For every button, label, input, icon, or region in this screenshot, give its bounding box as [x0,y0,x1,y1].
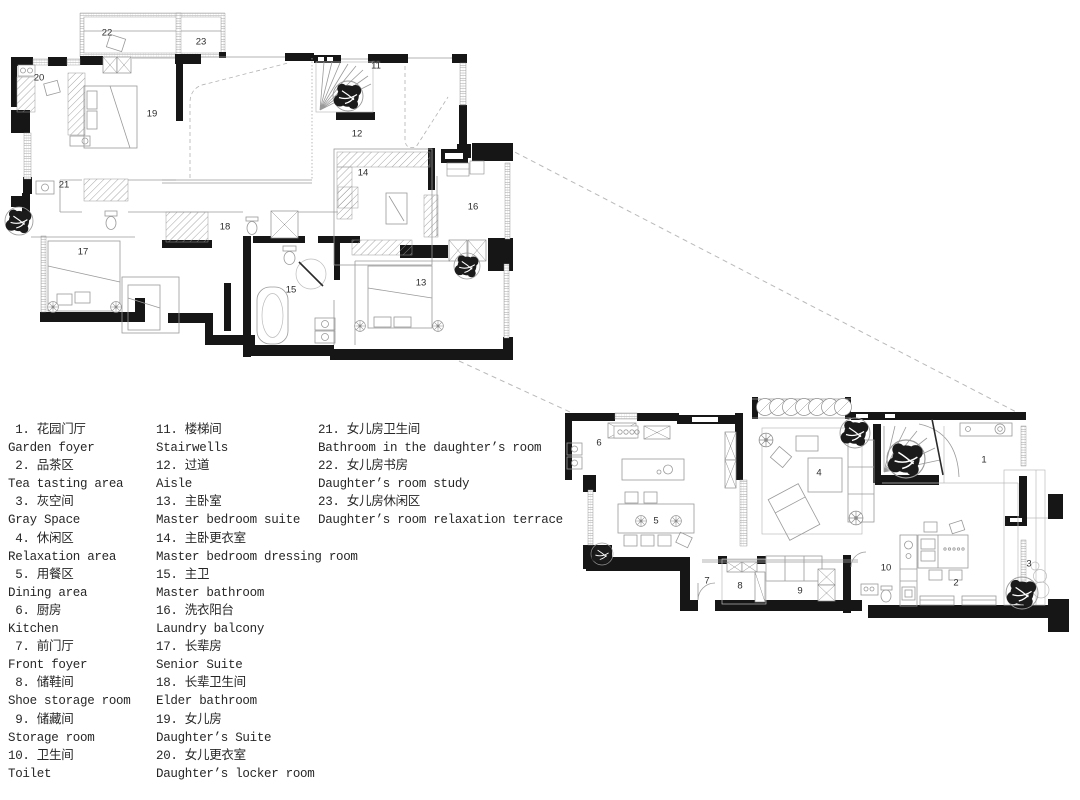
tree-icon [333,81,363,111]
legend-item-en-15: Master bathroom [156,584,358,602]
legend-item-en-4: Relaxation area [8,548,130,566]
tree-icon [840,418,870,448]
walls [565,397,1069,632]
dining-furniture [618,492,694,548]
foyer-counter [960,423,1012,436]
gray-space [1031,562,1049,598]
tree-icon [5,207,33,235]
second-floor-plan [5,13,513,360]
wardrobe-hatch [17,73,438,255]
legend-item-zh-23: 23. 女儿房休闲区 [318,493,563,511]
legend-item-zh-9: 9. 储藏间 [8,711,130,729]
legend-item-zh-6: 6. 厨房 [8,602,130,620]
legend-item-zh-8: 8. 储鞋间 [8,674,130,692]
legend-item-zh-19: 19. 女儿房 [156,711,358,729]
legend-item-en-22: Daughter’s room study [318,475,563,493]
projection-dashed-lines [459,148,1024,416]
legend-item-en-2: Tea tasting area [8,475,130,493]
legend-item-en-3: Gray Space [8,511,130,529]
tree-icon [1006,577,1038,609]
legend-item-en-10: Toilet [8,765,130,783]
legend-item-zh-20: 20. 女儿更衣室 [156,747,358,765]
legend-item-en-19: Daughter’s Suite [156,729,358,747]
legend-item-zh-4: 4. 休闲区 [8,530,130,548]
legend-item-en-9: Storage room [8,729,130,747]
louver-canopy [752,399,852,419]
legend-item-en-21: Bathroom in the daughter’s room [318,439,563,457]
legend-item-en-5: Dining area [8,584,130,602]
legend-item-en-7: Front foyer [8,656,130,674]
legend-item-zh-16: 16. 洗衣阳台 [156,602,358,620]
tree-icon [591,543,613,565]
legend-item-zh-21: 21. 女儿房卫生间 [318,421,563,439]
legend-item-en-23: Daughter’s room relaxation terrace [318,511,563,529]
legend-item-zh-1: 1. 花园门厅 [8,421,130,439]
terrace-border [80,13,225,57]
legend-item-en-6: Kitchen [8,620,130,638]
legend-item-zh-3: 3. 灰空间 [8,493,130,511]
legend-item-en-1: Garden foyer [8,439,130,457]
legend-item-zh-18: 18. 长辈卫生间 [156,674,358,692]
legend-item-zh-14: 14. 主卧更衣室 [156,530,358,548]
legend-item-zh-2: 2. 品茶区 [8,457,130,475]
legend-column-1: 1. 花园门厅Garden foyer 2. 品茶区Tea tasting ar… [8,421,130,783]
tree-icon [454,253,480,279]
tea-area-furniture [900,520,996,606]
legend-item-en-8: Shoe storage room [8,692,130,710]
living-room-furniture [759,428,874,540]
floor-plan-sheet: 2022231921111214161815171365478910213 1.… [0,0,1080,800]
legend-item-zh-5: 5. 用餐区 [8,566,130,584]
legend-item-en-20: Daughter’s locker room [156,765,358,783]
legend-item-zh-10: 10. 卫生间 [8,747,130,765]
legend-item-zh-17: 17. 长辈房 [156,638,358,656]
legend-item-zh-15: 15. 主卫 [156,566,358,584]
legend-item-en-18: Elder bathroom [156,692,358,710]
legend-column-3: 21. 女儿房卫生间Bathroom in the daughter’s roo… [318,421,563,530]
legend-item-en-16: Laundry balcony [156,620,358,638]
legend-item-en-17: Senior Suite [156,656,358,674]
legend-item-zh-22: 22. 女儿房书房 [318,457,563,475]
legend-item-zh-7: 7. 前门厅 [8,638,130,656]
first-floor-plan [565,397,1069,632]
legend-item-en-14: Master bedroom dressing room [156,548,358,566]
toilet-fixtures [851,552,892,602]
tree-icon [887,440,925,478]
